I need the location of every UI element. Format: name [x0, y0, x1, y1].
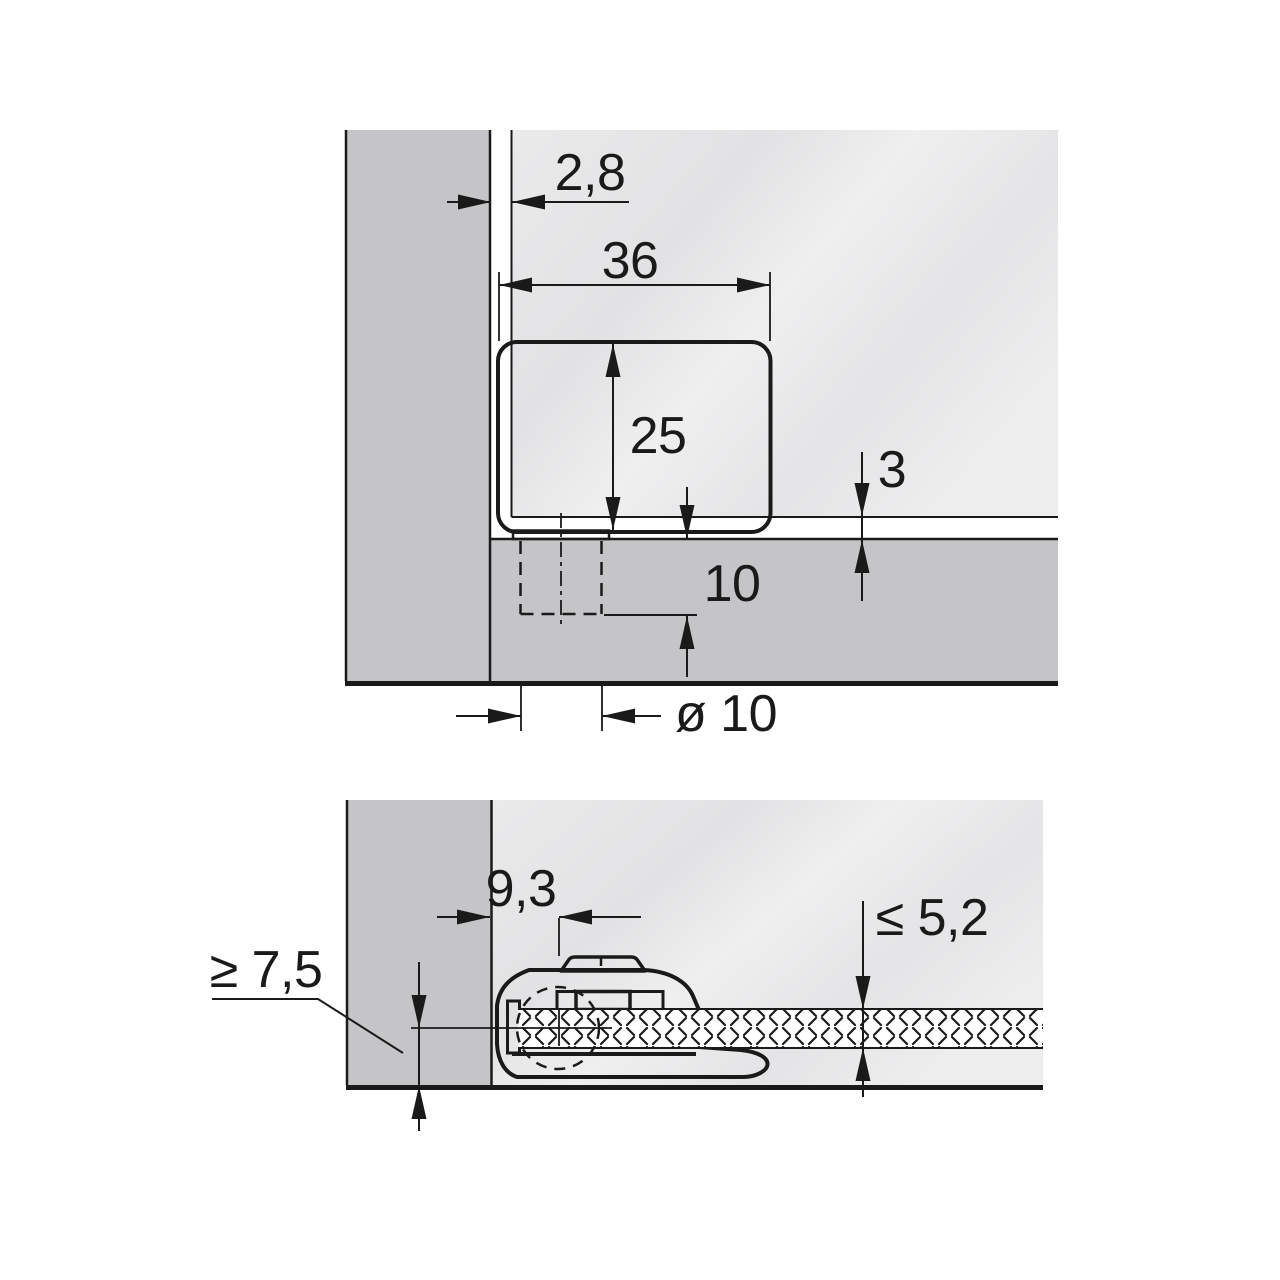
dim-diameter-10: ø 10	[456, 685, 777, 743]
dim-label: ø 10	[675, 685, 777, 743]
technical-drawing: 2,8 36 25 3 10	[0, 0, 1280, 1280]
dim-label: 2,8	[555, 144, 626, 202]
dim-label: 10	[704, 555, 761, 613]
bottom-view-drawing: 9,3 ≤ 5,2 ≥ 7,5	[210, 800, 1043, 1131]
dim-label: 36	[602, 232, 659, 290]
top-view-drawing: 2,8 36 25 3 10	[345, 130, 1058, 743]
bottom-panel	[490, 539, 1058, 681]
dim-label: 3	[878, 441, 906, 499]
technical-drawing-page: 2,8 36 25 3 10	[0, 0, 1280, 1280]
dim-label: ≥ 7,5	[210, 941, 323, 999]
dim-label: 9,3	[486, 860, 557, 918]
dim-label: 25	[630, 407, 687, 465]
dim-label: ≤ 5,2	[876, 889, 989, 947]
side-panel	[345, 130, 491, 681]
